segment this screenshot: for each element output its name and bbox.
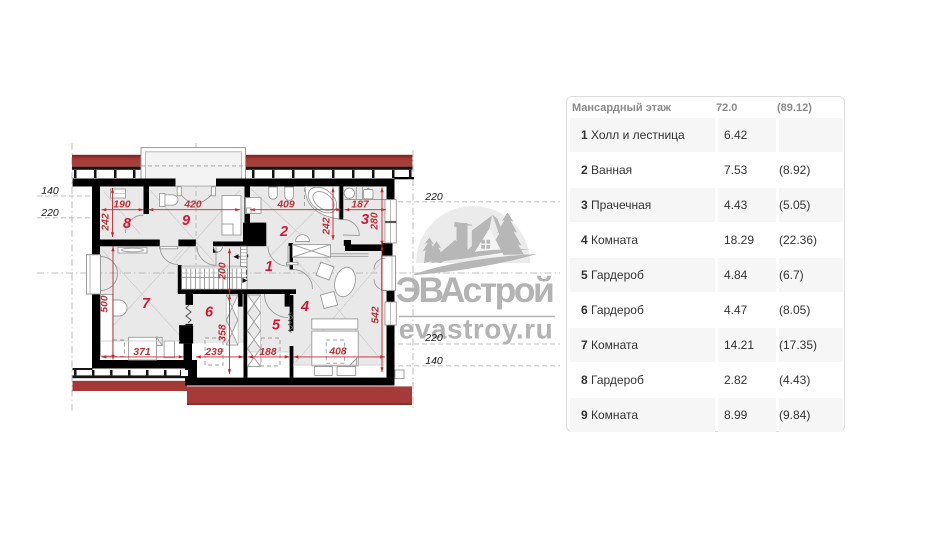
svg-text:200: 200: [218, 262, 229, 280]
svg-text:239: 239: [204, 347, 222, 358]
svg-text:280: 280: [370, 212, 381, 230]
svg-text:500: 500: [100, 295, 111, 312]
svg-text:220: 220: [424, 191, 443, 203]
svg-text:371: 371: [133, 347, 150, 358]
svg-text:409: 409: [276, 200, 294, 211]
svg-text:4: 4: [300, 299, 309, 315]
svg-text:6: 6: [205, 305, 214, 321]
svg-text:8: 8: [123, 216, 132, 232]
svg-text:7: 7: [142, 296, 151, 312]
svg-text:1: 1: [265, 259, 273, 275]
svg-text:542: 542: [371, 306, 382, 323]
svg-text:5: 5: [272, 318, 281, 334]
svg-text:242: 242: [322, 217, 333, 235]
svg-text:140: 140: [425, 355, 443, 367]
svg-text:358: 358: [218, 324, 229, 341]
svg-text:220: 220: [424, 332, 443, 344]
svg-text:187: 187: [351, 200, 369, 211]
svg-text:evastroy.ru: evastroy.ru: [399, 314, 553, 345]
svg-text:9: 9: [182, 213, 190, 229]
svg-text:3: 3: [361, 212, 369, 228]
svg-text:220: 220: [40, 207, 59, 219]
svg-text:188: 188: [259, 347, 276, 358]
svg-text:190: 190: [113, 200, 130, 211]
svg-text:ЭВАстрой: ЭВАстрой: [396, 270, 553, 310]
svg-text:242: 242: [101, 213, 112, 231]
svg-text:2: 2: [279, 224, 288, 240]
svg-text:408: 408: [328, 347, 346, 358]
svg-text:420: 420: [183, 200, 201, 211]
svg-text:140: 140: [41, 185, 59, 197]
